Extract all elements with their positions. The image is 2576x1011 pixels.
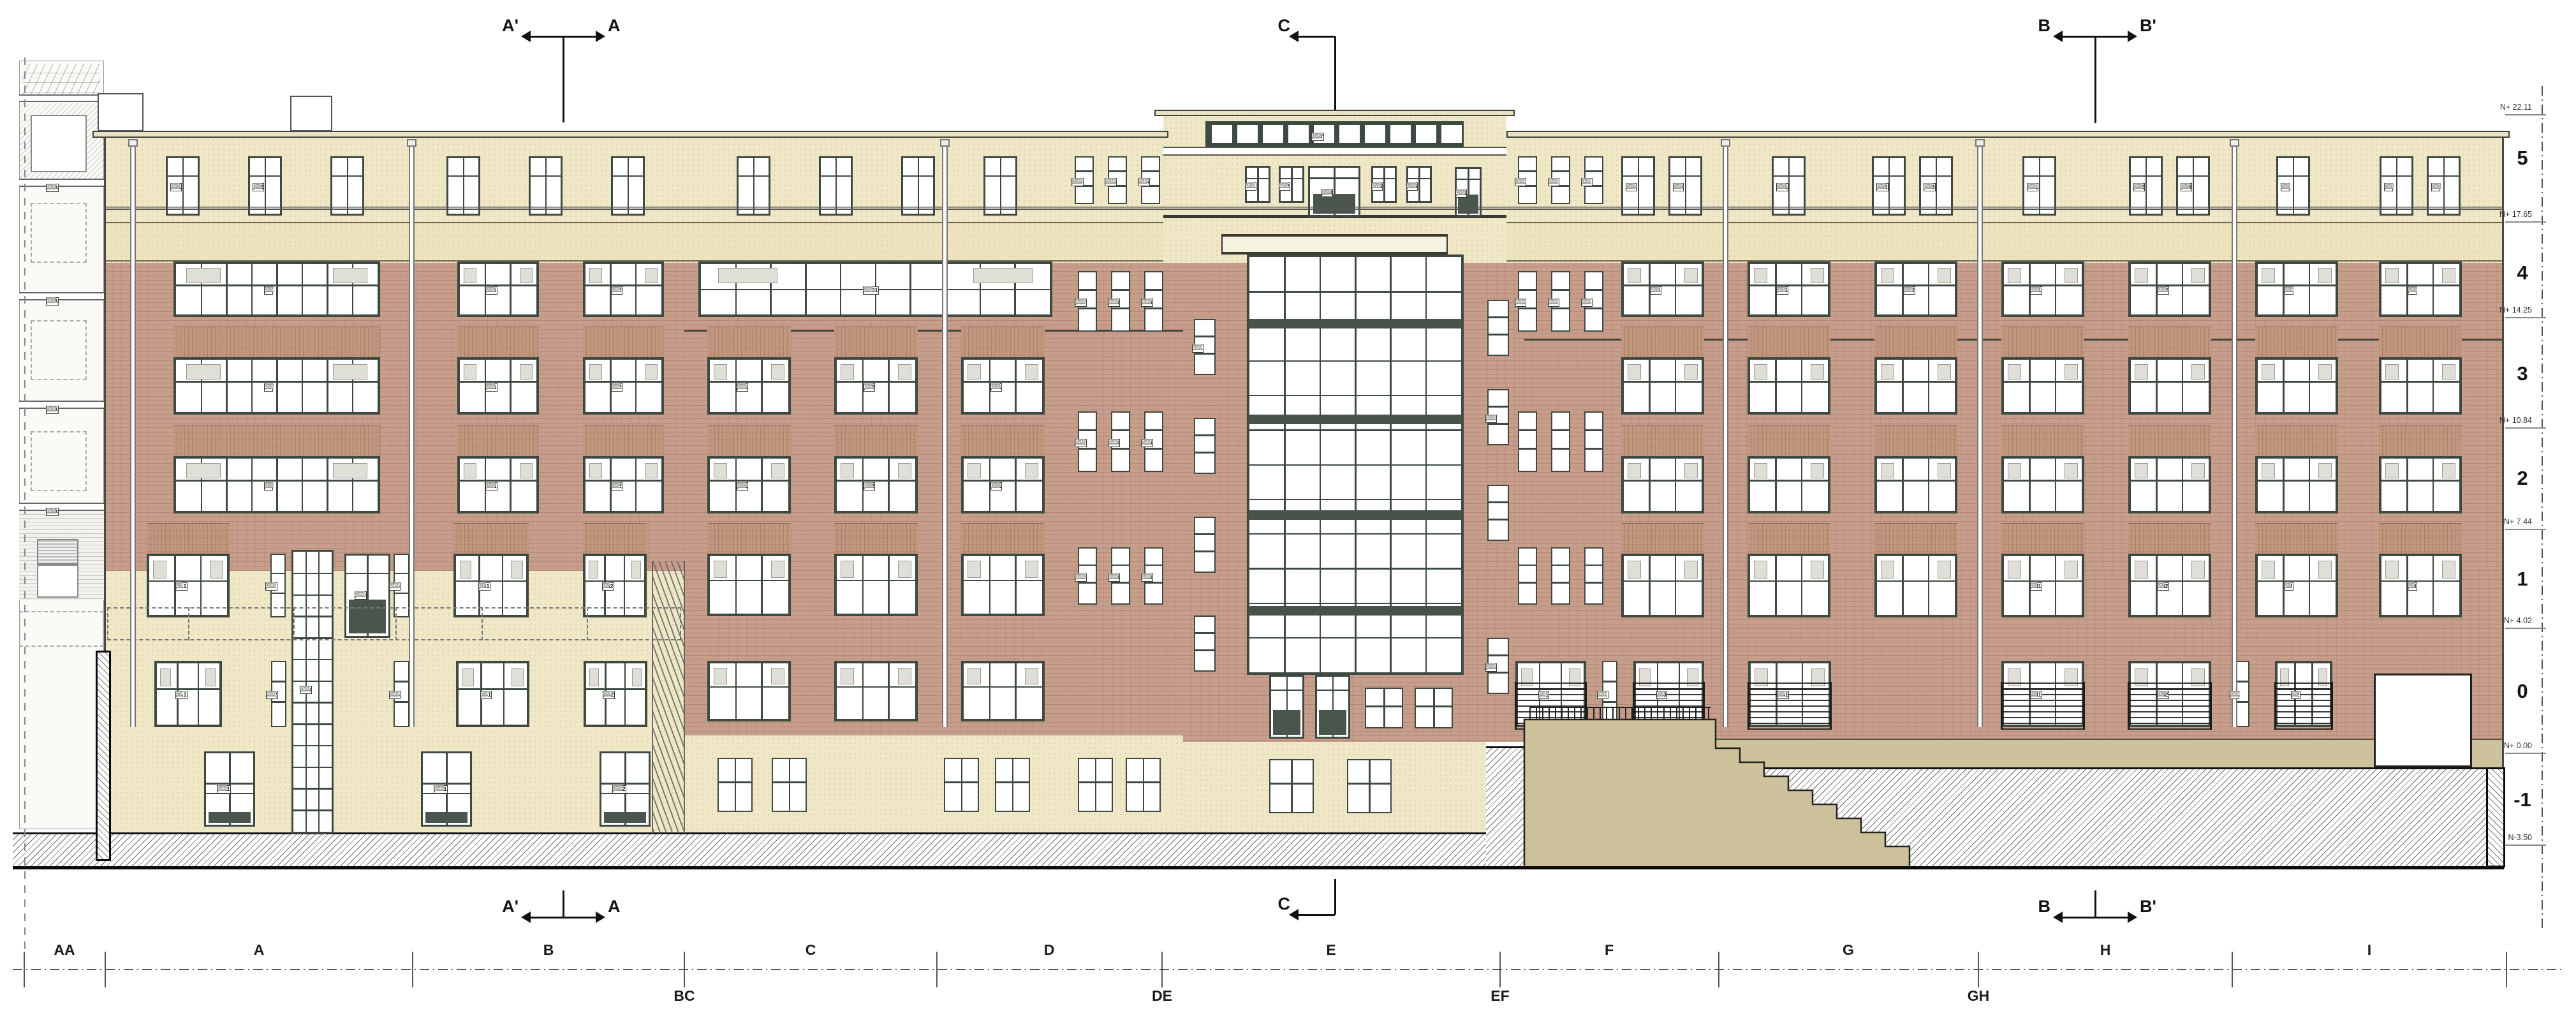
window-mullion	[1015, 663, 1017, 719]
window-tag-codes: N1DvS	[2431, 183, 2432, 189]
window-transom	[293, 681, 332, 683]
window-tag-code-right: DvS	[991, 482, 1000, 488]
window-tag-codes: N1DvS	[2384, 183, 2385, 189]
window-mullion	[2055, 459, 2057, 511]
window-transom	[1249, 291, 1461, 293]
window-nar	[1584, 411, 1603, 472]
window-transom	[1586, 307, 1602, 309]
window-transom	[719, 781, 751, 783]
window-transom	[272, 701, 285, 703]
window-mullion	[1649, 556, 1651, 615]
window-mullion	[1888, 158, 1890, 214]
window-tag-codes: RDvS	[1311, 133, 1313, 139]
window-tag-codes: N1DvS	[737, 482, 738, 489]
window-mullion	[888, 663, 890, 719]
window-transom	[1552, 565, 1569, 566]
window-transom	[2004, 480, 2082, 482]
ornamental-glass-pane	[1881, 463, 1894, 479]
window-big	[1748, 262, 1830, 317]
brick-spandrel-panel	[707, 425, 791, 456]
property-dashed-line	[24, 57, 26, 952]
brick-spandrel-panel	[1621, 327, 1704, 357]
window-transom	[585, 480, 661, 482]
grid-label-A: A	[254, 941, 265, 961]
window-mullion	[251, 459, 253, 511]
window-mullion	[761, 360, 763, 412]
window-wide	[173, 456, 380, 513]
window-transom	[2131, 381, 2209, 383]
section-arrow-head	[521, 911, 531, 923]
window-mullion	[2055, 556, 2057, 615]
window-mullion	[200, 556, 202, 615]
window-transom	[1079, 429, 1096, 431]
window-tag-code-right: DvS	[486, 286, 495, 292]
window-transom	[1195, 336, 1214, 337]
window-big	[707, 456, 791, 513]
window-tag-code-right: DvS	[265, 286, 274, 292]
window-big	[961, 661, 1045, 721]
window-transom	[1552, 307, 1569, 309]
window-transom	[1552, 582, 1569, 584]
section-arrow-head	[521, 31, 531, 42]
window-big	[2128, 661, 2211, 727]
brick-spandrel-panel	[2128, 523, 2211, 554]
brick-spandrel-panel	[1748, 327, 1830, 357]
window-tag-codes: N1DvS	[1876, 183, 1878, 189]
ornamental-glass-pane	[186, 268, 221, 283]
window-big	[2128, 357, 2211, 415]
window-transom	[2131, 480, 2209, 482]
window-transom	[1145, 448, 1162, 450]
window-tag-code-right: DvS	[737, 482, 746, 488]
window-tag-code-right: SvM	[1108, 299, 1118, 304]
window-mullion	[1675, 556, 1677, 615]
window-tag-code-right: DvM	[390, 691, 399, 697]
window-transom	[1249, 637, 1461, 639]
section-arrow-head	[2128, 31, 2137, 42]
window-tag-codes: N1DvS	[2408, 286, 2409, 293]
window-transom	[395, 573, 408, 575]
window-transom	[1603, 681, 1616, 683]
ornamental-glass-pane	[2064, 364, 2078, 380]
window-tag-codes: N1DvS	[46, 508, 47, 514]
window-transom	[293, 809, 332, 811]
window-mullion	[276, 360, 278, 412]
ornamental-glass-pane	[2262, 364, 2275, 380]
window-small	[772, 758, 807, 812]
window-transom	[1270, 783, 1313, 785]
window-transom	[1195, 533, 1214, 535]
ornamental-glass-pane	[2008, 268, 2021, 283]
ornamental-glass-pane	[333, 268, 367, 283]
window-mullion	[545, 158, 547, 214]
window-mullion	[1369, 760, 1371, 812]
window-transom	[1552, 170, 1569, 172]
window-mullion	[1015, 459, 1017, 511]
brick-spandrel-panel	[1748, 523, 1830, 554]
window-tag-codes: N1DvS	[611, 383, 612, 390]
window-small	[1365, 688, 1403, 728]
window-clr	[1287, 124, 1310, 144]
window-transom	[1519, 448, 1536, 450]
window-mullion	[1902, 556, 1904, 615]
window-transom	[149, 580, 227, 582]
window-tag-codes: N1DvS	[863, 286, 864, 293]
window-mullion	[753, 158, 755, 214]
window-mullion	[1015, 360, 1017, 412]
ornamental-glass-pane	[898, 668, 911, 684]
window-tag-code-right: DvS	[2181, 183, 2190, 189]
window-mullion	[1928, 459, 1930, 511]
balustrade-rail	[104, 207, 2504, 210]
window-tag-code-right: DvS	[1322, 189, 1331, 195]
window-mullion	[761, 556, 763, 614]
ornamental-glass-pane	[186, 463, 221, 479]
window-tag-codes: N1DvM	[2230, 691, 2231, 697]
cornice	[1506, 131, 2510, 138]
window-transom	[1623, 175, 1653, 177]
window-transom	[293, 788, 332, 790]
window-mullion	[2293, 158, 2295, 214]
window-mullion	[2432, 264, 2434, 314]
level-number: 1	[2503, 568, 2542, 593]
window-tag-codes: N1DvM	[265, 582, 267, 589]
window-tag-code-right: DvS	[486, 482, 495, 488]
window-tag-code-right: DvS	[47, 297, 55, 303]
grid-tick	[2232, 952, 2233, 987]
window-transom	[1195, 452, 1214, 454]
terrace-dashed-divider	[587, 607, 588, 640]
window-mullion	[2055, 360, 2057, 412]
window-transom	[2258, 480, 2336, 482]
ornamental-glass-pane	[2064, 561, 2078, 579]
window-transom	[1489, 672, 1508, 674]
window-transom	[2258, 580, 2336, 582]
window-mullion	[1012, 759, 1014, 811]
ornamental-glass-pane	[333, 463, 367, 479]
window-mullion	[2182, 459, 2184, 511]
window-tag-codes: N1DV	[2030, 582, 2031, 589]
window-tag-codes: N1DvS	[1776, 183, 1777, 189]
door-panel	[425, 812, 467, 823]
level-elevation-text: N+ 22.11	[2443, 103, 2532, 113]
grid-tick	[412, 952, 413, 987]
brick-spandrel-panel	[961, 425, 1045, 456]
window-mullion	[1801, 264, 1803, 314]
window-tag-code-right: DvS	[2285, 286, 2293, 292]
window-mullion	[2432, 556, 2434, 615]
brick-spandrel-panel	[1748, 425, 1830, 456]
level-line	[2505, 114, 2546, 115]
window-mullion	[1801, 360, 1803, 412]
window-mullion	[835, 158, 837, 214]
window-tag-code-right: DvS	[47, 508, 55, 513]
window-big	[1874, 554, 1957, 617]
window-dr	[1269, 675, 1304, 739]
parapet-block	[290, 96, 332, 131]
section-arrow-head	[2053, 31, 2063, 42]
ornamental-glass-pane	[771, 364, 784, 380]
window-tag-code-right: DV	[1539, 691, 1545, 697]
level-number: 0	[2503, 680, 2542, 705]
window-tag-code-right: DvS	[1626, 183, 1635, 189]
window-tag-code-right: DvS	[1924, 183, 1933, 189]
ornamental-glass-pane	[714, 364, 727, 380]
window-transom	[1109, 170, 1126, 172]
window-tag-code-right: DvS	[1246, 182, 1255, 188]
neighbor-dashed-window	[31, 431, 87, 491]
level-elevation-text: N+ 4.02	[2443, 616, 2532, 626]
window-tag-code-right: DvM	[1549, 178, 1558, 184]
ornamental-glass-pane	[1628, 463, 1641, 479]
brick-spandrel-panel	[2001, 425, 2084, 456]
window-transom	[710, 686, 788, 688]
window-tag-code-right: SvM	[1549, 299, 1558, 304]
window-big	[2001, 456, 2084, 513]
section-marker-label: B'	[2140, 897, 2184, 917]
window-mullion	[502, 556, 504, 615]
ornamental-glass-pane	[2191, 561, 2205, 579]
window-transom	[293, 573, 332, 575]
window-transom	[1489, 406, 1508, 408]
section-marker-label: B	[2006, 16, 2050, 36]
window-tag-code-right: SvM	[1075, 573, 1085, 579]
ornamental-glass-pane	[632, 668, 642, 687]
window-nar	[1487, 485, 1509, 541]
ornamental-glass-pane	[2135, 463, 2148, 479]
window-clr	[1415, 124, 1438, 144]
ornamental-glass-pane	[2442, 268, 2455, 283]
grid-sublabel-EF: EF	[1490, 987, 1509, 1007]
window-transom	[964, 480, 1042, 482]
window-tag-codes: RSvM	[1141, 439, 1142, 445]
window-tag-codes: N1DvS	[2027, 183, 2028, 189]
window-tag-code-right: DvS	[2408, 286, 2417, 292]
ornamental-glass-pane	[589, 268, 602, 283]
ornamental-glass-pane	[898, 561, 911, 578]
window-transom	[2004, 284, 2082, 286]
window-transom	[821, 175, 851, 177]
curtainwall-spandrel	[1249, 319, 1462, 328]
window-transom	[1624, 381, 1702, 383]
window-tag-codes: N1DvM	[1581, 178, 1582, 184]
downspout-hopper	[128, 139, 138, 147]
window-tag-code-right: DvS	[737, 383, 746, 389]
window-big	[456, 661, 529, 727]
window-nar	[1518, 411, 1537, 472]
window-mullion	[1649, 360, 1651, 412]
window-tag-code-right: DvM	[267, 691, 276, 697]
window-mullion	[862, 556, 864, 614]
window-tag-codes: N1DvM	[355, 591, 356, 598]
window-tag-codes: N1DvS	[737, 383, 738, 390]
window-mullion	[2443, 158, 2445, 214]
window-tag-codes: N1SvM	[1138, 178, 1139, 184]
window-tag-codes: N1DvS	[264, 383, 265, 390]
window-tag-codes: N1DvS	[611, 482, 612, 489]
window-tag-codes: N1DV	[2157, 691, 2158, 697]
window-tag-code-right: DvS	[2028, 183, 2036, 189]
window-big	[583, 357, 664, 415]
window-mullion	[1801, 556, 1803, 615]
section-marker-label: B	[2006, 897, 2050, 917]
window-mullion	[1685, 158, 1687, 214]
window-tag-codes: N1DvS	[1924, 183, 1925, 189]
window-tag-code-right: DvS	[612, 286, 621, 292]
ornamental-glass-pane	[898, 463, 911, 479]
window-tag-code-right: DvM	[355, 591, 365, 597]
ornamental-glass-pane	[968, 364, 981, 380]
window-transom	[1774, 175, 1804, 177]
window-transom	[448, 175, 478, 177]
section-arrow-line	[1298, 36, 1335, 38]
window-tag-code-right: SvM	[1075, 439, 1085, 445]
grid-label-G: G	[1843, 941, 1854, 961]
window-wide	[173, 262, 380, 317]
window-tag-code-right: SvM	[1072, 178, 1082, 184]
window-tag-code-right: SvM	[1108, 439, 1118, 445]
window-transom	[272, 593, 284, 594]
window-transom	[1670, 175, 1700, 177]
window-tag-code-right: SvM	[434, 785, 444, 791]
window-transom	[996, 781, 1029, 783]
window-transom	[1249, 499, 1461, 501]
window-transom	[2131, 580, 2209, 582]
brick-spandrel-panel	[2255, 425, 2338, 456]
window-tag-code-right: DV	[1657, 691, 1663, 697]
window-mullion	[276, 459, 278, 511]
brick-spandrel-panel	[147, 523, 230, 554]
window-transom	[1586, 582, 1602, 584]
ornamental-glass-pane	[898, 364, 911, 380]
ornamental-glass-pane	[589, 463, 602, 479]
level-line	[2505, 529, 2546, 530]
window-transom	[1519, 429, 1536, 431]
level-elevation-text: N+ 7.44	[2443, 517, 2532, 528]
window-transom	[1457, 179, 1480, 181]
window-tag-codes: N2DvM	[300, 686, 301, 692]
window-transom	[1195, 434, 1214, 436]
window-tag-codes: RSvM	[217, 785, 218, 792]
window-mullion	[1936, 158, 1938, 214]
window-big	[2255, 456, 2338, 513]
grid-tick	[2506, 952, 2507, 987]
window-tag-codes: RSvM	[1192, 344, 1193, 351]
grid-tick	[684, 952, 685, 987]
window-transom	[1552, 289, 1569, 291]
window-transom	[2381, 480, 2459, 482]
ornamental-glass-pane	[645, 364, 658, 380]
window-transom	[1877, 284, 1955, 286]
window-transom	[1079, 448, 1096, 450]
neighbor-dashed-window	[19, 611, 104, 647]
window-mullion	[2406, 360, 2408, 412]
brick-spandrel-panel	[961, 523, 1045, 554]
window-tag-codes: N1DvS	[2284, 286, 2285, 293]
window-transom	[1366, 705, 1402, 707]
window-tag-code-right: DvS	[864, 383, 873, 389]
grid-tick	[1499, 952, 1501, 987]
window-mullion	[226, 360, 228, 412]
window-transom	[1249, 360, 1461, 362]
ornamental-glass-pane	[2191, 268, 2205, 283]
window-mullion	[1143, 759, 1145, 811]
ornamental-glass-pane	[1754, 463, 1767, 479]
level-number: 2	[2503, 467, 2542, 492]
window-tag-codes: N1DvS	[485, 482, 487, 489]
window-big	[154, 661, 222, 727]
window-tag-codes: N1DvS	[2157, 286, 2158, 293]
window-tag-codes: RSvM	[1108, 573, 1109, 580]
grid-tick	[936, 952, 938, 987]
cornice	[92, 131, 1168, 138]
window-tag-codes: N1DV	[2408, 582, 2409, 589]
level-line	[2505, 317, 2546, 318]
ornamental-glass-pane	[968, 668, 981, 684]
ornamental-glass-pane	[645, 268, 658, 283]
window-transom	[964, 580, 1042, 582]
window-tag-codes: N1DV	[2157, 582, 2158, 589]
window-tag-codes: RSvM	[1108, 299, 1109, 305]
window-transom	[1079, 781, 1112, 783]
cornice	[1154, 110, 1515, 116]
window-transom	[293, 702, 332, 704]
ornamental-glass-pane	[2318, 364, 2332, 380]
window-tag-codes: N1SvM	[1105, 178, 1106, 184]
window-transom	[985, 175, 1015, 177]
ornamental-glass-pane	[645, 463, 658, 479]
window-tag-codes: N1DV	[602, 582, 603, 589]
window-tag-codes: N1DvM	[1597, 691, 1598, 697]
window-clr	[1262, 124, 1284, 144]
window-big	[2379, 554, 2462, 617]
window-tag-code-right: DV	[603, 582, 609, 588]
window-transom	[1624, 580, 1702, 582]
window-tag-codes: RSvM	[1075, 573, 1076, 580]
window-mullion	[1383, 689, 1385, 727]
window-tag-code-right: DvS	[1651, 286, 1660, 292]
window-transom	[1408, 178, 1430, 180]
window-tag-codes: N1DV	[2291, 691, 2292, 697]
window-nar	[1194, 418, 1216, 474]
window-transom	[1310, 177, 1358, 179]
window-transom	[1586, 429, 1602, 431]
window-big	[2001, 262, 2084, 317]
window-transom	[1519, 565, 1536, 566]
window-tag-codes: N1DvS	[264, 482, 265, 489]
window-mullion	[2145, 158, 2147, 214]
section-marker-stem	[2094, 36, 2096, 123]
window-transom	[710, 580, 788, 582]
section-arrow-head	[596, 31, 605, 42]
window-tag-codes: RSvM	[1075, 439, 1076, 445]
brick-spandrel-panel	[453, 523, 529, 554]
window-transom	[1195, 353, 1214, 355]
window-big	[1874, 262, 1957, 317]
window-transom	[2004, 381, 2082, 383]
brick-spandrel-panel	[2255, 523, 2338, 554]
window-big	[2275, 661, 2332, 727]
window-tag-code-right: SvM	[1075, 299, 1085, 304]
window-tag-code-right: SvM	[1582, 299, 1591, 304]
window-transom	[1249, 464, 1461, 466]
window-big	[834, 554, 918, 616]
ornamental-glass-pane	[1938, 561, 1951, 579]
window-tag-code-right: DvS	[47, 184, 55, 189]
level-number: 3	[2503, 362, 2542, 388]
window-transom	[460, 284, 536, 286]
window-mullion	[888, 556, 890, 614]
